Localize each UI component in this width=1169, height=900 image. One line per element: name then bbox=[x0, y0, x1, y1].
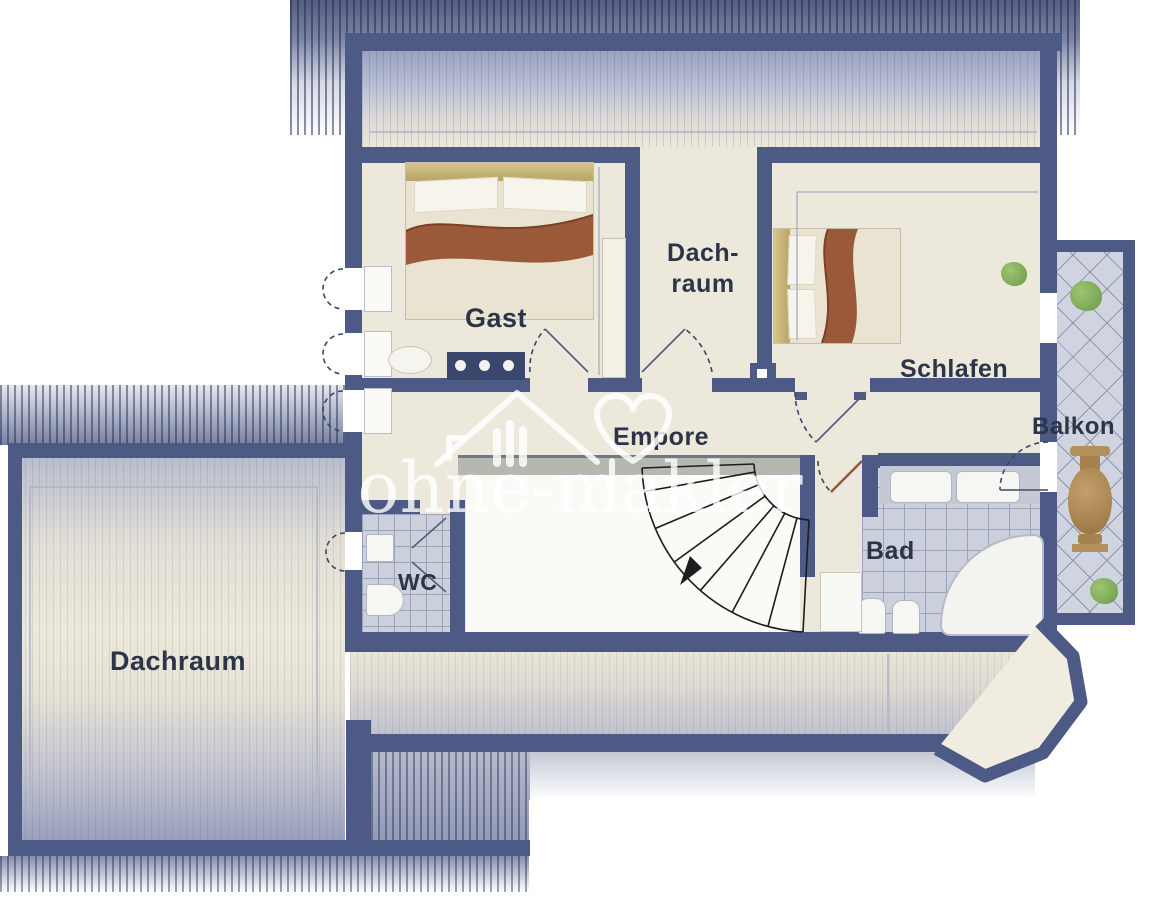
dachraum-mitte-line2: raum bbox=[657, 269, 749, 300]
door-swing-arcs bbox=[323, 269, 1048, 571]
wc-label: WC bbox=[398, 569, 437, 596]
balkon-label: Balkon bbox=[1032, 413, 1115, 441]
schlafen-label: Schlafen bbox=[900, 355, 1008, 384]
floorplan-canvas: Gast Dach- raum Schlafen Balkon Empore W… bbox=[0, 0, 1169, 900]
gast-label: Gast bbox=[465, 303, 527, 334]
bad-door-leaf bbox=[831, 461, 862, 492]
bad-label: Bad bbox=[866, 537, 915, 566]
dachraum-mitte-line1: Dach- bbox=[657, 238, 749, 269]
empore-label: Empore bbox=[613, 423, 709, 452]
dachraum-links-label: Dachraum bbox=[110, 646, 246, 677]
knee-wall-lines bbox=[30, 132, 1038, 810]
plan-linework bbox=[0, 0, 1169, 900]
bay-window-outline bbox=[937, 622, 1081, 776]
dachraum-mitte-label: Dach- raum bbox=[657, 238, 749, 300]
spiral-staircase bbox=[642, 464, 809, 632]
